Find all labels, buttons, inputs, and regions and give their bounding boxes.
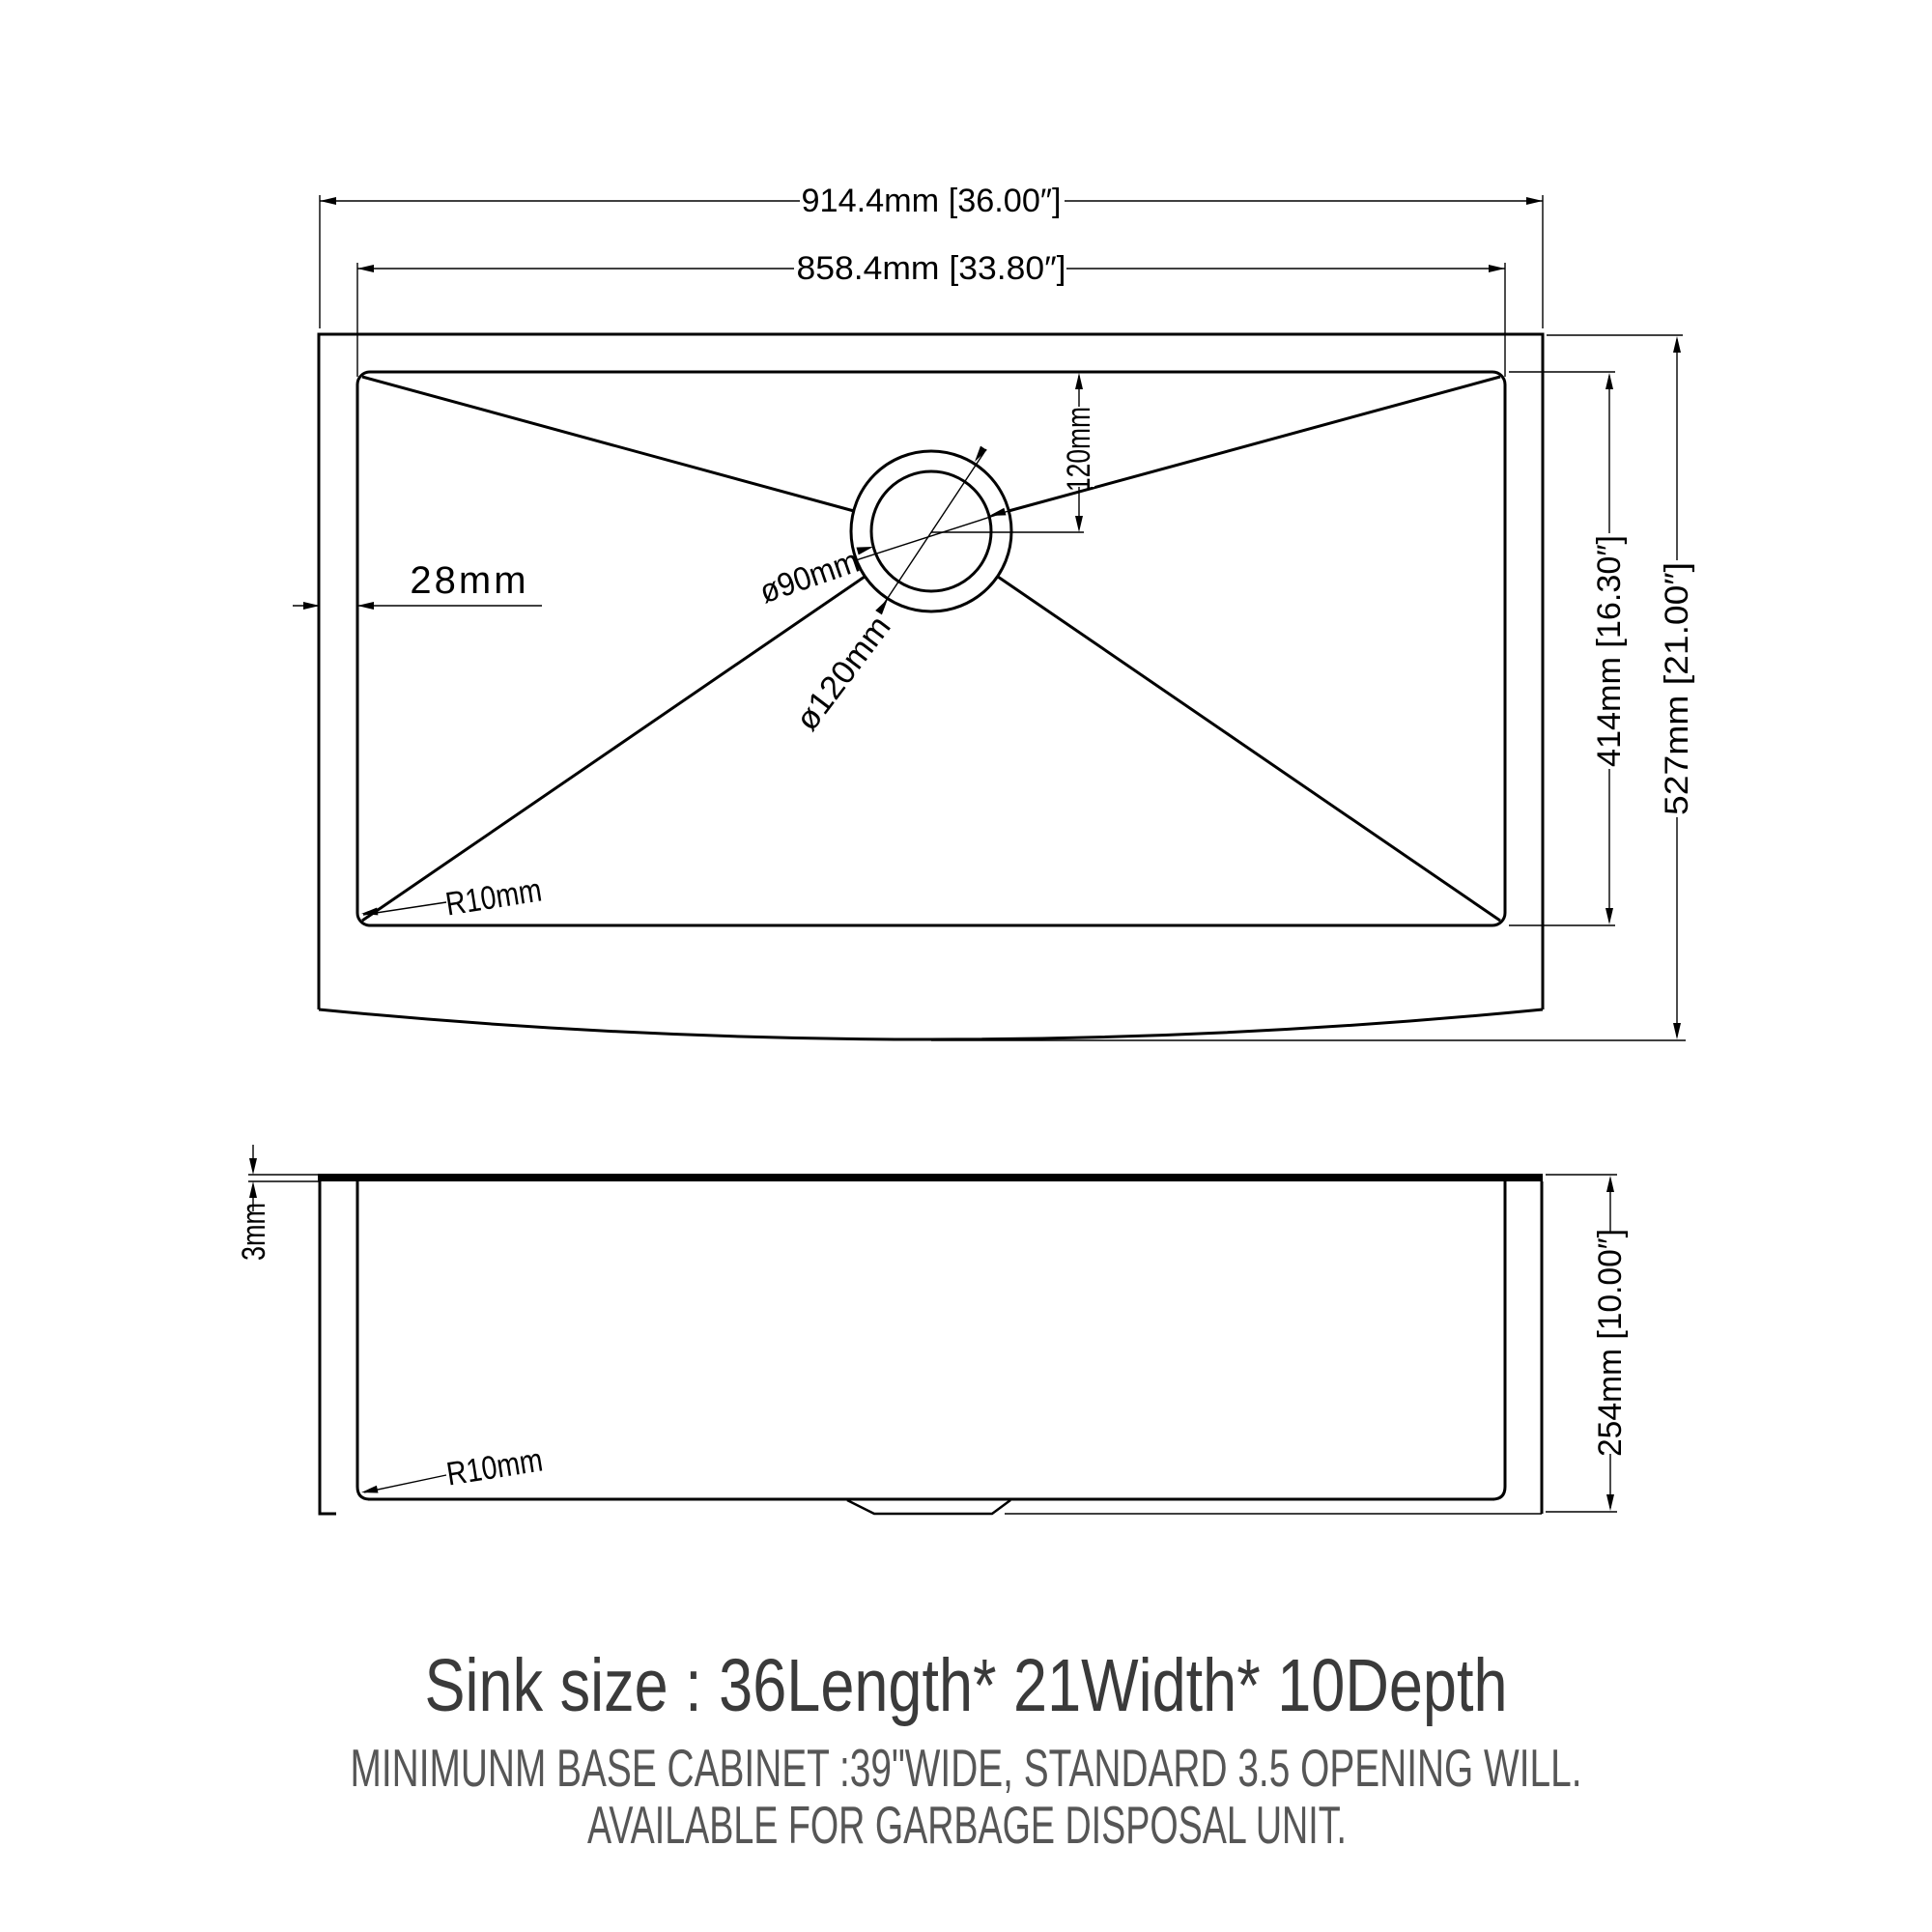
svg-text:MINIMUNM BASE CABINET :39"WIDE: MINIMUNM BASE CABINET :39"WIDE, STANDARD… — [351, 1738, 1582, 1798]
svg-text:414mm [16.30″]: 414mm [16.30″] — [1591, 535, 1628, 767]
svg-text:914.4mm [36.00″]: 914.4mm [36.00″] — [802, 183, 1062, 219]
svg-text:254mm [10.00″]: 254mm [10.00″] — [1592, 1229, 1629, 1457]
svg-text:858.4mm [33.80″]: 858.4mm [33.80″] — [797, 250, 1066, 287]
svg-text:120mm: 120mm — [1061, 407, 1097, 492]
svg-text:28mm: 28mm — [410, 559, 528, 602]
svg-text:R10mm: R10mm — [443, 871, 545, 923]
svg-text:3mm: 3mm — [236, 1203, 272, 1261]
svg-text:ø120mm: ø120mm — [788, 609, 897, 737]
svg-text:Sink size : 36Length* 21Width: Sink size : 36Length* 21Width* 10Depth — [425, 1644, 1508, 1727]
svg-text:R10mm: R10mm — [444, 1441, 546, 1492]
svg-text:ø90mm: ø90mm — [755, 543, 865, 611]
svg-text:AVAILABLE FOR GARBAGE DISPOSAL: AVAILABLE FOR GARBAGE DISPOSAL UNIT. — [587, 1795, 1347, 1855]
svg-text:527mm [21.00″]: 527mm [21.00″] — [1659, 562, 1695, 815]
